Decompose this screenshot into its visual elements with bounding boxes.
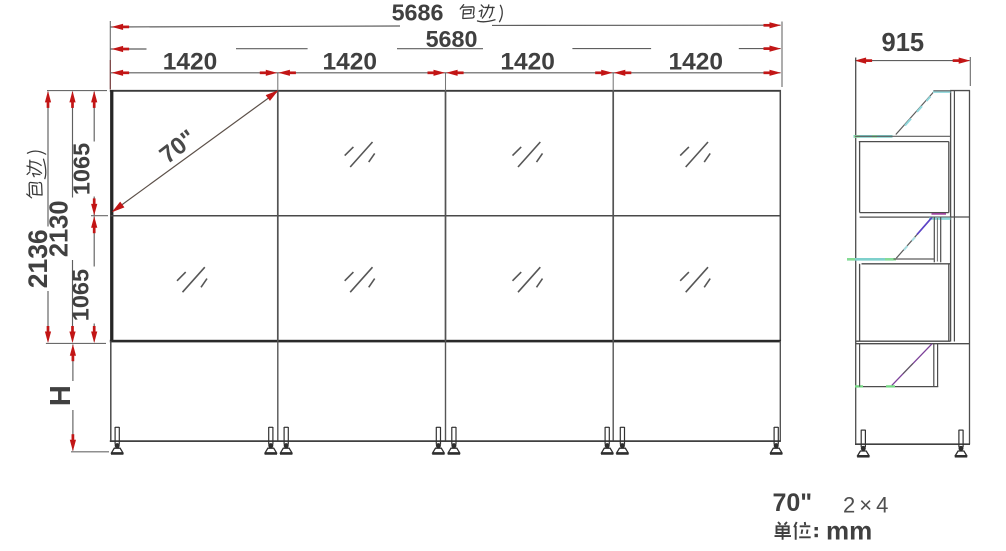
svg-text:70": 70" bbox=[773, 489, 813, 517]
svg-text:1065: 1065 bbox=[68, 269, 94, 321]
svg-text:2×4: 2×4 bbox=[843, 493, 892, 518]
svg-text:1420: 1420 bbox=[500, 49, 555, 76]
svg-text:1420: 1420 bbox=[323, 49, 378, 76]
svg-text:2130: 2130 bbox=[46, 200, 74, 257]
svg-text:915: 915 bbox=[882, 29, 925, 57]
svg-text:1420: 1420 bbox=[163, 49, 218, 76]
svg-text:1420: 1420 bbox=[668, 49, 723, 76]
svg-text:1065: 1065 bbox=[68, 143, 94, 195]
svg-text:70": 70" bbox=[155, 125, 202, 170]
svg-text:5686: 5686 bbox=[392, 0, 444, 25]
svg-text:mm: mm bbox=[826, 516, 872, 546]
svg-text:H: H bbox=[45, 385, 77, 406]
svg-text:5680: 5680 bbox=[426, 26, 478, 52]
